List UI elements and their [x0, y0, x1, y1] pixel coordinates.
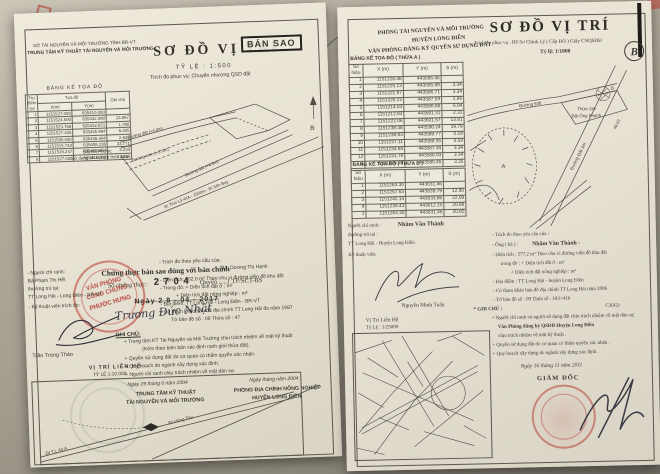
table-cell: 3.34: [441, 82, 463, 89]
photo-background: SỞ TÀI NGUYÊN VÀ MÔI TRƯỜNG TỈNH BR-VT T…: [0, 0, 660, 474]
table-cell: 0.59: [442, 138, 464, 145]
inset-title: Vị Trí Liên Hệ: [366, 317, 399, 324]
table-cell: 13.81: [442, 117, 464, 124]
col-header-s: S (m): [441, 62, 463, 75]
ranh-label: Người chỉ ranh :: [348, 223, 381, 229]
table-cell: 3.35: [443, 159, 465, 166]
coord-table-b: Số hiệu X (m) Y (m) S (m) 11151263.30443…: [351, 168, 467, 219]
table-cell: 443633.86: [406, 196, 444, 204]
table-cell: 8: [28, 156, 41, 163]
table-cell: 3.34: [441, 89, 463, 96]
parcel-label: A: [501, 164, 505, 170]
table-cell: 443631.46: [406, 210, 444, 218]
table-cell: 1.96: [442, 96, 464, 103]
address-label: thường trú tại:: [28, 286, 60, 293]
col-header-point: Trụ điểm Số: [25, 95, 38, 113]
col-header-s: S (m): [443, 168, 465, 181]
col-header-y: Y (m): [403, 63, 441, 77]
col-header-no: Số hiệu: [349, 64, 363, 77]
table-cell: 443589.35: [404, 138, 442, 146]
copy-stamp: BẢN SAO: [241, 34, 302, 53]
doc-title: SƠ ĐỒ VỊ TRÍ: [489, 18, 610, 38]
director-signature: [569, 369, 653, 445]
request-name: Nhâm Văn Thành -: [532, 240, 580, 248]
table-cell: 2.31: [442, 110, 464, 117]
north-arrow-icon: [310, 96, 317, 105]
table-cell: 1: [352, 211, 366, 218]
road-label: Đường mòn (+2.0m): [131, 146, 170, 162]
ranh-name: Nhâm Văn Thành: [398, 221, 444, 229]
table-cell: 10: [350, 140, 364, 147]
col-header-x: X (m): [365, 169, 405, 183]
parcel-label: B: [611, 86, 614, 91]
request-label: - Trích đo theo yêu cầu của :: [492, 232, 549, 239]
parcel-label: Thửa 116: [577, 106, 596, 111]
technician-name: Nguyễn Minh Tuấn: [401, 302, 444, 309]
road-continuation: [148, 381, 326, 461]
table-cell: 20.88: [444, 202, 466, 209]
technician-signature: [366, 257, 462, 305]
table-cell: 1151263.30: [366, 210, 406, 218]
notes-title: * GHI CHÚ :: [473, 307, 502, 313]
table-cell: 443631.46: [405, 182, 443, 190]
col-header-y: Y (m): [405, 169, 443, 183]
right-document: PHÒNG TÀI NGUYÊN VÀ MÔI TRƯỜNG HUYỆN LON…: [337, 1, 660, 471]
table-cell: 3.34: [443, 152, 465, 159]
road-label: ĐI T.L 44 A: [45, 445, 69, 455]
table-cell: 443590.24: [404, 125, 442, 133]
table-cell: 443639.79: [406, 189, 444, 197]
date-line: Ngày 16 tháng 11 năm 2011: [521, 362, 583, 370]
coord-table-a: Số hiệu X (m) Y (m) S (m) 11151228.48443…: [348, 62, 465, 169]
inset-scale: Tỷ Lệ : 1/25000: [366, 325, 398, 331]
parcel-label: Đất Ông Khanh: [571, 113, 601, 119]
table-cell: 20.85: [444, 209, 466, 216]
table-cell: 443612.15: [406, 203, 444, 211]
road-label: Đi Tỉnh Lộ 44A - 2500m - Đi Sân Bay: [164, 179, 230, 210]
col-header-no: Số hiệu: [351, 170, 365, 183]
address-label: thường trú tại :: [348, 233, 378, 239]
table-cell: 6.04: [442, 103, 464, 110]
table-cell: 1151527.030: [40, 155, 74, 163]
north-label: B: [310, 125, 315, 132]
table-cell: 12.90: [443, 188, 465, 195]
table-cell: 11: [351, 147, 365, 154]
table-cell: 443591.31: [404, 111, 442, 119]
table-cell: 19.79: [442, 124, 464, 131]
road-label: Đường đất (+4.5m): [184, 159, 220, 178]
parcel-diagram: Đường Đất Đường Đất 3m 48.02 Thửa 116 Đấ…: [466, 57, 652, 231]
table-cell: 12: [351, 154, 365, 161]
parcel-diagram: B Đường đất (+4.0m) Đường mòn (+2.0m) Đư…: [117, 89, 326, 221]
scale-line: Tỷ lệ: 1/1000: [540, 48, 570, 55]
col-header-x: X (m): [363, 63, 403, 77]
street-map: [352, 330, 491, 459]
table-cell: 443601.57: [404, 118, 442, 126]
table-cell: 3.34: [443, 145, 465, 152]
parcel-code: C3(42): [605, 303, 619, 309]
table-cell: 22.09: [444, 195, 466, 202]
request-name-label: - Ông ( bà ) :: [492, 243, 518, 249]
left-document: SỞ TÀI NGUYÊN VÀ MÔI TRƯỜNG TỈNH BR-VT T…: [14, 2, 342, 467]
dimension-label: 48.02: [612, 118, 621, 130]
table-cell: 443589.77: [404, 132, 442, 140]
table-cell: 0.59: [442, 131, 464, 138]
